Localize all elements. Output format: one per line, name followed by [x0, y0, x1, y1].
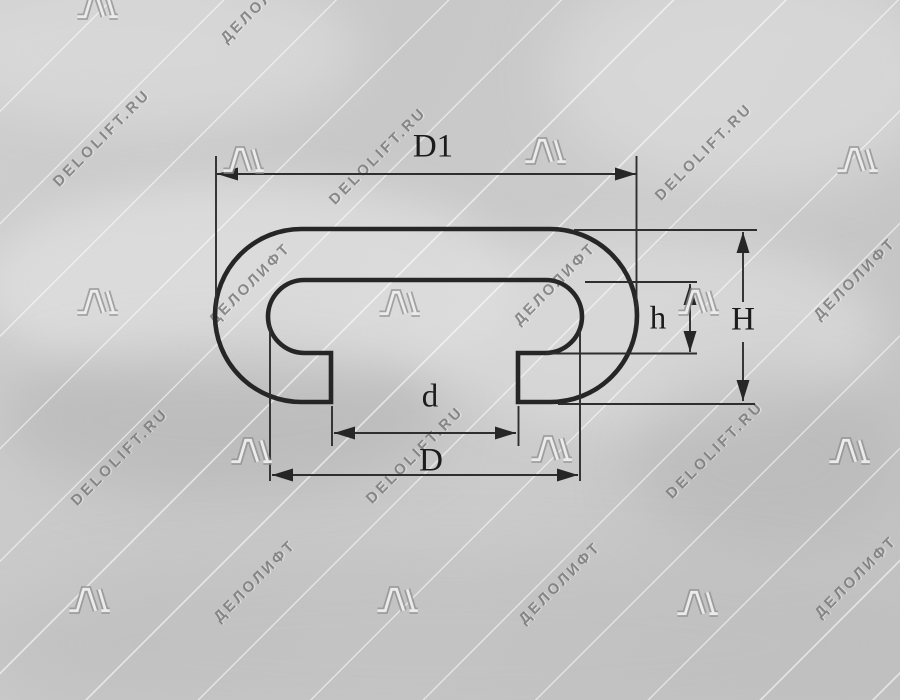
- delolift-logo-icon: [68, 584, 112, 616]
- delolift-logo-icon: [222, 144, 266, 176]
- delolift-logo-icon: [378, 287, 422, 319]
- delolift-logo-icon: [230, 435, 274, 467]
- delolift-logo-icon: [524, 135, 568, 167]
- delolift-logo-icon: [530, 433, 574, 465]
- handrail-profile-drawing: ДЕЛОЛИФТDELOLIFT.RUDELOLIFT.RUDELOLIFT.R…: [0, 0, 900, 700]
- delolift-logo-icon: [836, 144, 880, 176]
- watermark-logo-layer: [0, 0, 900, 700]
- delolift-logo-icon: [676, 587, 720, 619]
- delolift-logo-icon: [76, 286, 120, 318]
- delolift-logo-icon: [677, 286, 721, 318]
- delolift-logo-icon: [222, 144, 266, 176]
- delolift-logo-icon: [76, 0, 120, 22]
- delolift-logo-icon: [836, 144, 880, 176]
- delolift-logo-icon: [530, 433, 574, 465]
- delolift-logo-icon: [676, 587, 720, 619]
- delolift-logo-icon: [378, 287, 422, 319]
- delolift-logo-icon: [76, 0, 120, 22]
- delolift-logo-icon: [828, 435, 872, 467]
- delolift-logo-icon: [376, 584, 420, 616]
- delolift-logo-icon: [76, 286, 120, 318]
- delolift-logo-icon: [68, 584, 112, 616]
- delolift-logo-icon: [677, 286, 721, 318]
- delolift-logo-icon: [230, 435, 274, 467]
- delolift-logo-icon: [524, 135, 568, 167]
- delolift-logo-icon: [376, 584, 420, 616]
- delolift-logo-icon: [828, 435, 872, 467]
